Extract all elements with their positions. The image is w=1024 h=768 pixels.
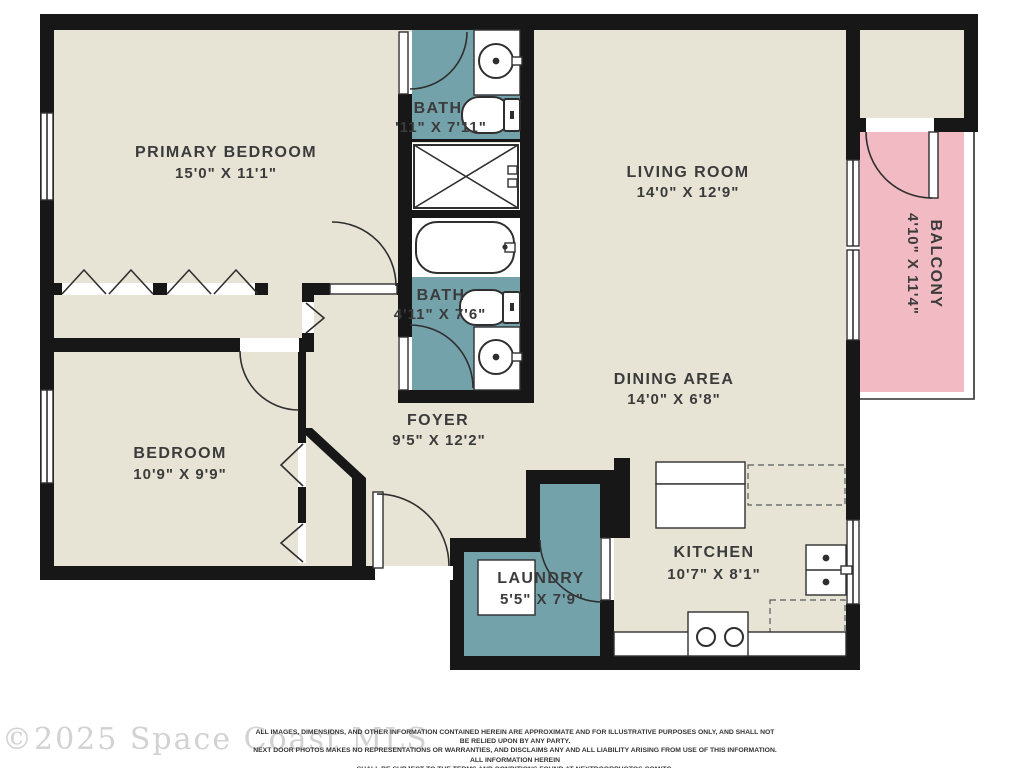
balcony-storage-nook <box>860 30 964 118</box>
living-room-label: LIVING ROOM <box>627 164 750 181</box>
disclaimer-line-1: ALL IMAGES, DIMENSIONS, AND OTHER INFORM… <box>253 728 777 746</box>
shower-fixture-icon <box>414 145 518 208</box>
living-room-window-lower <box>847 250 859 340</box>
bath-top-label: BATH <box>414 100 463 117</box>
kitchen-window <box>847 520 859 604</box>
kitchen-dims: 10'7" X 8'1" <box>667 566 760 583</box>
balcony-label: BALCONY <box>927 220 944 309</box>
dining-area-label: DINING AREA <box>614 371 735 388</box>
primary-bedroom-window <box>41 113 53 200</box>
stove-fixture-icon <box>688 612 748 656</box>
living-room-window-upper <box>847 160 859 246</box>
laundry-dims: 5'5" X 7'9" <box>500 591 584 608</box>
bath-top-dims: '11" X 7'11" <box>395 119 487 136</box>
bedroom-label: BEDROOM <box>133 445 226 462</box>
primary-bedroom-dims: 15'0" X 11'1" <box>175 165 277 182</box>
bedroom-window <box>41 390 53 483</box>
bath-middle-label: BATH <box>417 287 466 304</box>
kitchen-label: KITCHEN <box>674 544 755 561</box>
foyer-label: FOYER <box>407 412 469 429</box>
bath-top-sink-fixture-icon <box>474 30 522 95</box>
floor-plan-page: PRIMARY BEDROOM 15'0" X 11'1" BATH '11" … <box>0 0 1024 768</box>
balcony-dims: 4'10" X 11'4" <box>904 213 921 315</box>
bedroom-dims: 10'9" X 9'9" <box>133 466 226 483</box>
bath-middle-sink-fixture-icon <box>474 327 522 390</box>
disclaimer-line-2: NEXT DOOR PHOTOS MAKES NO REPRESENTATION… <box>253 746 777 764</box>
floor-plan-drawing: PRIMARY BEDROOM 15'0" X 11'1" BATH '11" … <box>0 0 1024 768</box>
foyer-dims: 9'5" X 12'2" <box>392 432 485 449</box>
kitchen-sink-fixture-icon <box>806 545 852 595</box>
laundry-label: LAUNDRY <box>497 570 584 587</box>
dining-area-dims: 14'0" X 6'8" <box>627 391 720 408</box>
bathtub-fixture-icon <box>416 222 515 273</box>
disclaimer-text: ALL IMAGES, DIMENSIONS, AND OTHER INFORM… <box>253 728 777 768</box>
bath-middle-dims: 4'11" X 7'6" <box>394 306 487 323</box>
living-room-dims: 14'0" X 12'9" <box>637 184 740 201</box>
primary-bedroom-label: PRIMARY BEDROOM <box>135 144 317 161</box>
